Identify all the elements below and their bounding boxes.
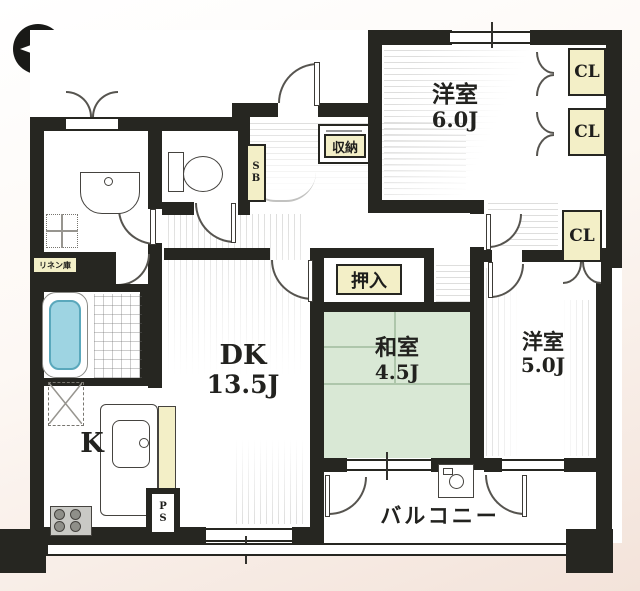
stove-burner <box>70 509 81 520</box>
washbasin-faucet <box>104 177 113 186</box>
balcony-faucet-spout <box>443 468 453 475</box>
wall-segment <box>596 262 612 473</box>
room-name: DK <box>180 340 306 371</box>
western5-door-leaf <box>488 262 493 298</box>
wall-segment <box>324 248 424 258</box>
room-label-dk: DK 13.5J <box>180 340 306 400</box>
washing-machine-pan-cross <box>46 230 78 232</box>
toilet-bowl <box>183 156 223 192</box>
wall-segment <box>596 473 612 543</box>
stove-burner <box>54 521 65 532</box>
room-label-japanese: 和室 4.5J <box>324 336 470 384</box>
wall-segment <box>470 200 484 214</box>
wall-segment <box>164 248 270 260</box>
wall-segment <box>148 243 162 388</box>
x-mark-icon <box>49 383 82 424</box>
room-size: 4.5J <box>324 361 470 384</box>
wall-segment <box>324 302 434 312</box>
room-label-kitchen: K <box>70 428 114 459</box>
balcony-door-leaf <box>325 475 330 517</box>
western6-door-leaf <box>486 214 491 250</box>
room-name: 洋室 <box>385 82 525 108</box>
wall-segment <box>30 117 66 131</box>
balcony-faucet <box>449 474 464 489</box>
wall-segment <box>162 202 194 215</box>
window <box>450 31 530 44</box>
stove-burner <box>70 521 81 532</box>
wall-segment <box>470 247 484 470</box>
pipe-space-box: PS <box>146 488 180 538</box>
wall-segment <box>368 30 382 213</box>
toilet-tank <box>168 152 184 192</box>
wall-segment <box>368 200 472 213</box>
wall-segment <box>0 529 46 573</box>
refrigerator-space <box>48 382 84 426</box>
window <box>347 459 431 471</box>
closet-label: CL <box>568 108 606 156</box>
window <box>502 459 564 471</box>
toilet-door-leaf <box>231 203 236 243</box>
closet-label: CL <box>568 48 606 96</box>
window <box>206 528 292 542</box>
linen-closet-label: リネン庫 <box>32 256 78 274</box>
wall-segment <box>232 103 278 117</box>
entry-side-door-threshold <box>66 117 118 131</box>
room-label-balcony: バルコニー <box>340 504 540 528</box>
room-size: 5.0J <box>490 354 596 377</box>
wall-segment <box>484 250 492 262</box>
front-door-leaf <box>314 62 320 106</box>
japanese-room-floor <box>324 312 470 458</box>
wall-segment <box>118 117 232 131</box>
wall-segment <box>292 527 322 543</box>
pipe-space-label: PS <box>158 501 169 525</box>
wall-segment <box>368 30 452 45</box>
kitchen-faucet <box>139 438 149 448</box>
room-label-western6: 洋室 6.0J <box>385 82 525 133</box>
balcony-railing <box>46 543 568 556</box>
room-size: 13.5J <box>180 371 306 400</box>
wall-segment <box>564 458 598 472</box>
shunou-shelf-line <box>326 130 362 132</box>
oshiire-label: 押入 <box>336 264 402 295</box>
wall-segment <box>324 458 347 472</box>
wall-segment <box>484 458 502 472</box>
window-tick <box>491 22 493 48</box>
room-name: 和室 <box>324 336 470 361</box>
floor-plan: N <box>0 0 640 591</box>
dk-hatch-lower <box>236 424 308 524</box>
window-tick <box>386 452 388 480</box>
stove-burner <box>54 509 65 520</box>
wall-segment <box>606 30 622 262</box>
dk-door-leaf <box>308 260 313 302</box>
corridor-stub-hatch <box>436 260 470 302</box>
closet-label: CL <box>562 210 602 262</box>
shoe-box-label: SB <box>246 144 266 202</box>
room-name: 洋室 <box>490 330 596 354</box>
room-label-western5: 洋室 5.0J <box>490 330 596 377</box>
bathtub-water <box>49 300 81 370</box>
bathroom-tile-floor <box>94 294 142 378</box>
wall-segment <box>434 302 472 312</box>
room-size: 6.0J <box>385 108 525 132</box>
western5-hatch-right <box>558 300 594 456</box>
kitchen-counter-panel <box>158 406 176 490</box>
shunou-label: 収納 <box>324 134 366 158</box>
washroom-door-leaf <box>150 209 156 245</box>
wall-segment <box>148 131 162 209</box>
